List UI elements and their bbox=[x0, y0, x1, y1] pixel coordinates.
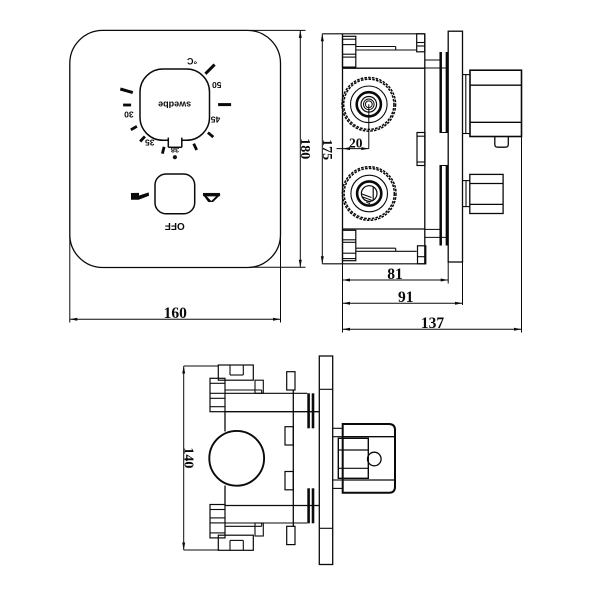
svg-text:35: 35 bbox=[145, 138, 155, 148]
svg-text:175: 175 bbox=[319, 139, 334, 160]
svg-text:45: 45 bbox=[211, 114, 221, 124]
svg-text:160: 160 bbox=[164, 305, 188, 322]
svg-text:137: 137 bbox=[421, 315, 445, 332]
svg-text:20: 20 bbox=[349, 136, 363, 151]
svg-text:38: 38 bbox=[171, 146, 179, 155]
svg-text:OFF: OFF bbox=[165, 220, 185, 231]
svg-text:30: 30 bbox=[124, 109, 134, 119]
svg-text:swedbe: swedbe bbox=[158, 99, 191, 109]
svg-text:140: 140 bbox=[181, 447, 196, 468]
svg-text:°C: °C bbox=[186, 56, 197, 66]
svg-text:50: 50 bbox=[212, 80, 222, 90]
svg-text:91: 91 bbox=[398, 289, 414, 306]
svg-text:180: 180 bbox=[297, 138, 312, 159]
svg-text:81: 81 bbox=[387, 266, 403, 283]
